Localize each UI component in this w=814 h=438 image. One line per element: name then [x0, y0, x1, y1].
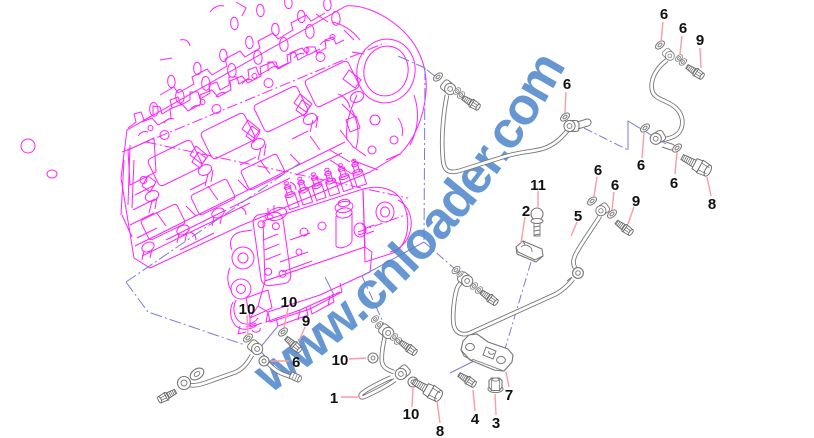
svg-text:9: 9: [696, 32, 704, 49]
svg-text:8: 8: [436, 423, 444, 438]
svg-text:2: 2: [522, 203, 530, 220]
svg-text:6: 6: [670, 175, 678, 192]
svg-text:5: 5: [574, 208, 582, 225]
svg-text:6: 6: [637, 157, 645, 174]
svg-text:6: 6: [679, 20, 687, 37]
svg-text:4: 4: [471, 411, 480, 428]
svg-text:10: 10: [403, 406, 420, 423]
svg-text:8: 8: [708, 196, 716, 213]
svg-text:6: 6: [611, 177, 619, 194]
svg-text:6: 6: [660, 6, 668, 23]
svg-text:6: 6: [594, 162, 602, 179]
svg-text:1: 1: [330, 390, 338, 407]
svg-text:3: 3: [492, 415, 500, 432]
svg-text:6: 6: [292, 354, 300, 371]
svg-text:9: 9: [302, 313, 310, 330]
svg-text:9: 9: [632, 193, 640, 210]
svg-text:6: 6: [563, 76, 571, 93]
svg-text:10: 10: [281, 294, 298, 311]
svg-text:11: 11: [530, 177, 546, 194]
svg-text:10: 10: [332, 352, 349, 369]
svg-text:7: 7: [505, 387, 513, 404]
svg-text:10: 10: [239, 301, 256, 318]
